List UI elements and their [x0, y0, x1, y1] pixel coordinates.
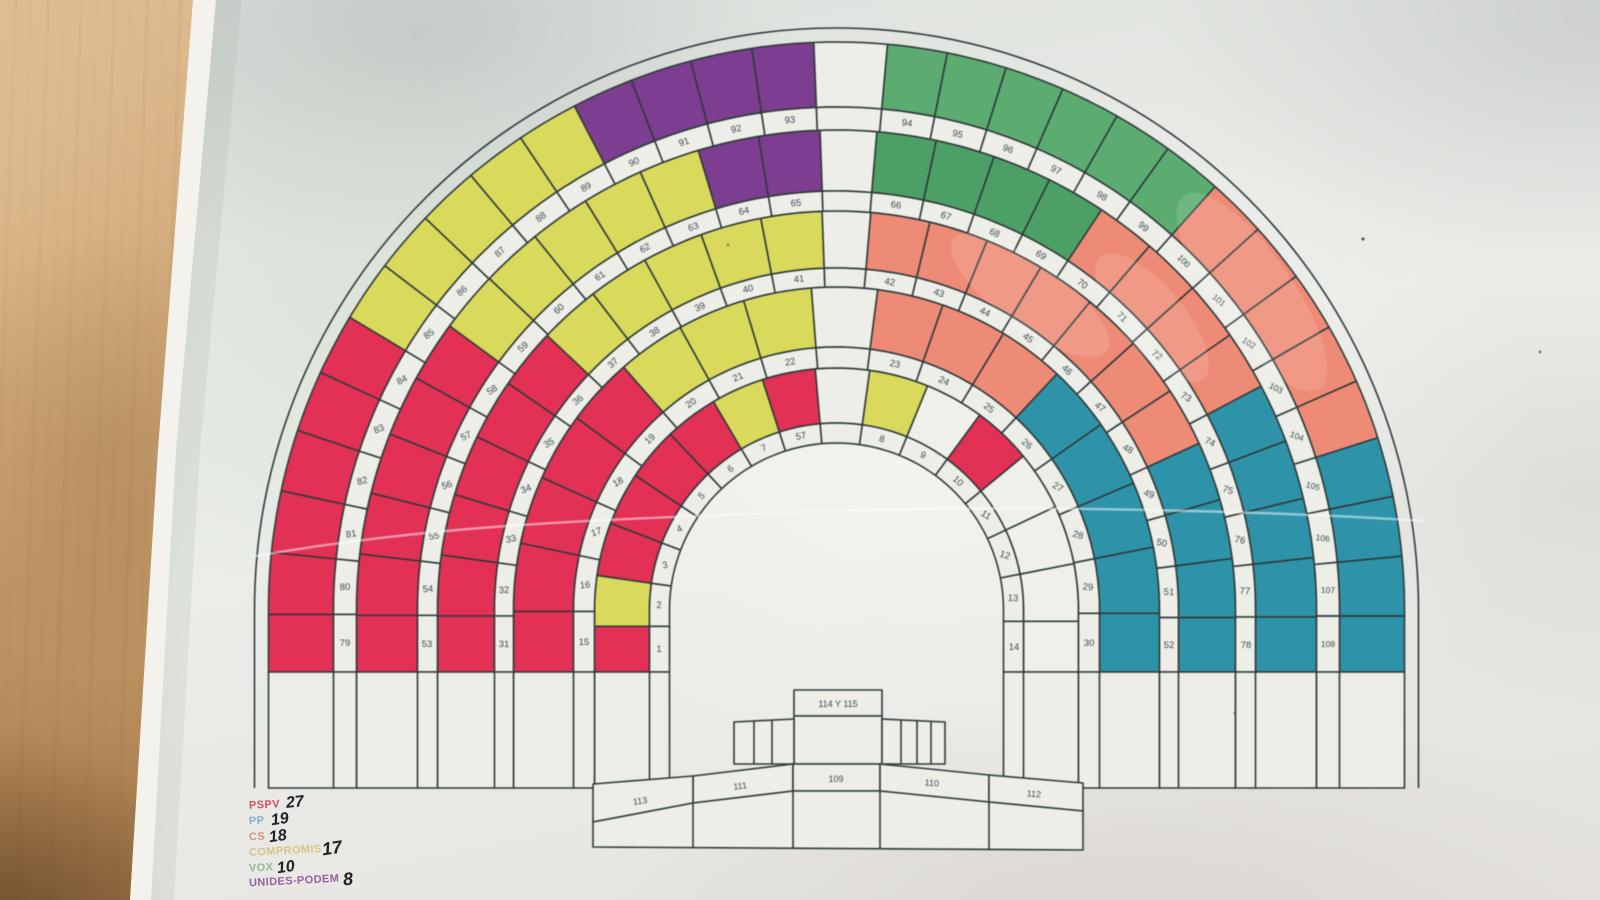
svg-text:111: 111	[733, 780, 748, 791]
svg-text:15: 15	[579, 637, 590, 648]
svg-text:52: 52	[1164, 640, 1175, 651]
svg-text:22: 22	[784, 356, 796, 369]
svg-text:66: 66	[890, 199, 902, 211]
svg-text:57: 57	[795, 430, 807, 443]
svg-text:65: 65	[790, 197, 802, 209]
svg-text:93: 93	[784, 115, 795, 127]
svg-text:14: 14	[1009, 642, 1020, 653]
svg-text:2: 2	[656, 600, 662, 611]
svg-text:41: 41	[793, 273, 805, 285]
svg-text:94: 94	[901, 117, 913, 129]
svg-text:109: 109	[828, 774, 843, 784]
svg-text:13: 13	[1007, 593, 1018, 605]
svg-text:33: 33	[505, 533, 518, 546]
svg-text:80: 80	[339, 582, 350, 594]
svg-text:42: 42	[884, 276, 896, 289]
svg-text:110: 110	[924, 777, 939, 788]
svg-text:29: 29	[1082, 582, 1093, 594]
svg-text:108: 108	[1321, 639, 1335, 649]
svg-text:77: 77	[1239, 586, 1250, 598]
svg-text:114 Y 115: 114 Y 115	[818, 699, 857, 709]
svg-text:50: 50	[1155, 537, 1168, 550]
svg-text:32: 32	[498, 585, 509, 597]
svg-text:92: 92	[730, 123, 743, 136]
svg-text:30: 30	[1084, 638, 1095, 649]
svg-text:1: 1	[656, 644, 661, 655]
svg-text:16: 16	[579, 579, 591, 591]
svg-text:53: 53	[422, 639, 433, 650]
svg-text:112: 112	[1026, 788, 1041, 799]
svg-text:31: 31	[499, 639, 510, 650]
svg-text:54: 54	[422, 584, 433, 596]
svg-text:78: 78	[1241, 640, 1252, 651]
svg-text:51: 51	[1163, 587, 1174, 599]
svg-text:79: 79	[340, 638, 351, 649]
svg-text:106: 106	[1315, 532, 1331, 544]
svg-text:107: 107	[1321, 585, 1336, 595]
svg-text:76: 76	[1234, 534, 1246, 547]
svg-text:81: 81	[345, 528, 357, 541]
